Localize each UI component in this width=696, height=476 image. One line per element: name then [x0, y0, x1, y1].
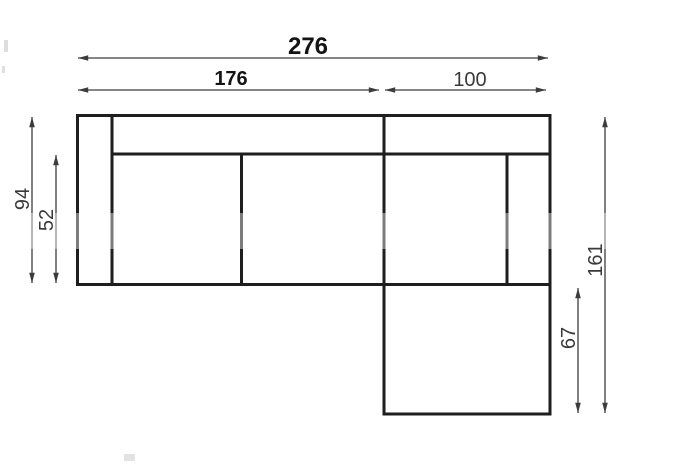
dim-label-overall-width: 276	[288, 33, 328, 60]
dim-label-left-section-width: 176	[214, 68, 247, 90]
watermark-speck	[4, 40, 8, 52]
diagram-canvas: 276 176 100 94 52 161 67	[0, 0, 696, 476]
dim-label-left-seat-depth: 52	[36, 209, 58, 231]
dimension-labels: 276 176 100 94 52 161 67	[12, 33, 607, 349]
chaise-outline	[384, 285, 550, 415]
dim-label-right-total-depth: 161	[585, 243, 607, 276]
watermark-speck	[124, 454, 135, 461]
sofa-outline	[78, 116, 551, 415]
dim-label-chaise-width: 100	[453, 69, 486, 91]
watermark-band	[25, 213, 640, 249]
main-body-outline	[78, 116, 551, 285]
watermark-speck	[2, 66, 5, 73]
dim-label-left-total-depth: 94	[12, 188, 34, 210]
dim-label-chaise-extension: 67	[558, 327, 580, 349]
sofa-dimension-drawing: 276 176 100 94 52 161 67	[0, 0, 696, 476]
